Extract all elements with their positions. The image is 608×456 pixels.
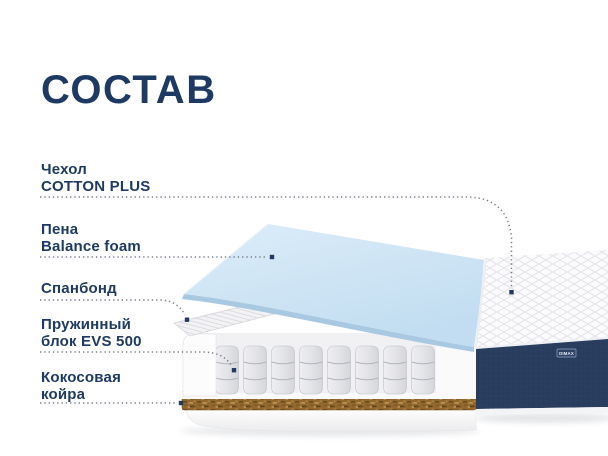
leader-spunbond	[40, 300, 185, 315]
coir-layer	[182, 398, 476, 411]
spring-pocket	[300, 346, 323, 394]
spring-pocket	[244, 346, 267, 394]
bottom-base-layer	[186, 408, 476, 432]
spring-pocket	[412, 346, 435, 394]
spring-pocket	[272, 346, 295, 394]
spring-pocket	[384, 346, 407, 394]
brand-badge-text: DIMAX	[559, 351, 574, 356]
composition-infographic: СОСТАВ Чехол COTTON PLUS Пена Balance fo…	[0, 0, 608, 456]
side-panel: DIMAX	[476, 339, 608, 415]
mattress-illustration: DIMAX	[0, 0, 608, 456]
foam-layer	[182, 224, 484, 352]
spring-pocket	[328, 346, 351, 394]
quilted-cover	[476, 250, 608, 348]
brand-badge: DIMAX	[557, 349, 576, 357]
spring-encasement-left	[183, 334, 216, 396]
spring-pocket	[356, 346, 379, 394]
